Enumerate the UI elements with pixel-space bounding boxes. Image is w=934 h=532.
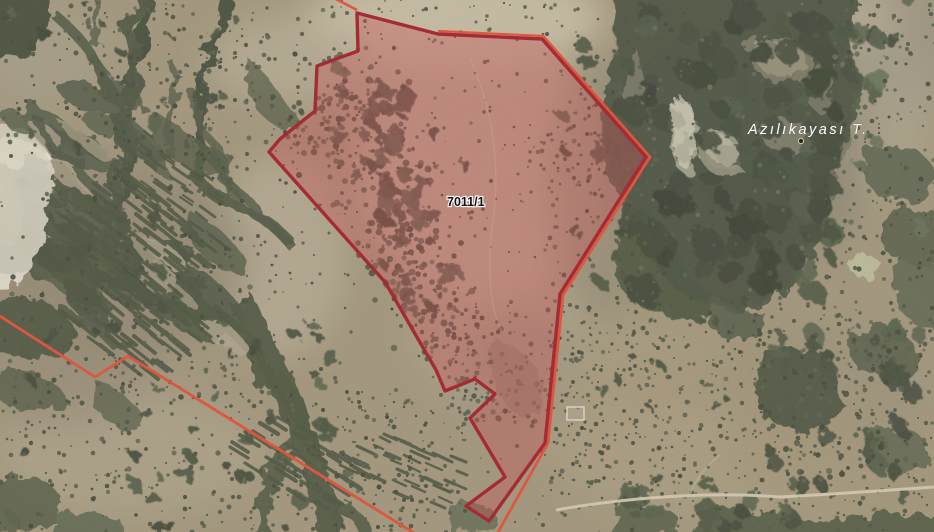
svg-text:7011/1: 7011/1 bbox=[447, 195, 485, 209]
svg-text:Azılıkayası T.: Azılıkayası T. bbox=[747, 122, 869, 138]
